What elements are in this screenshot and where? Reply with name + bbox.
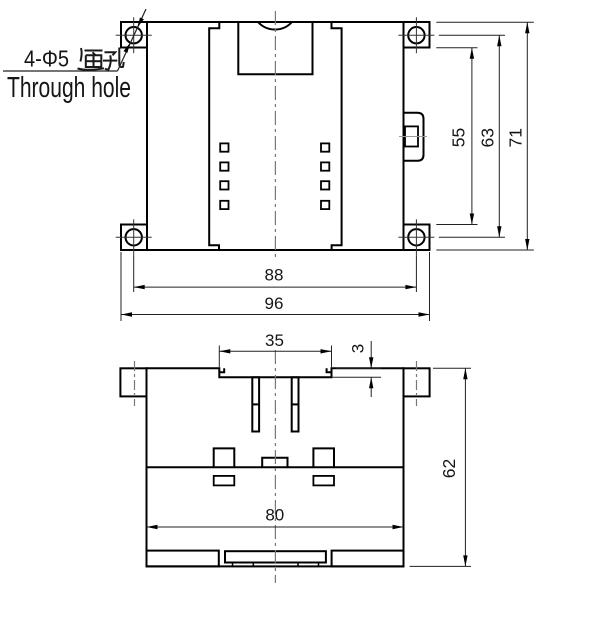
- svg-text:4-Φ5: 4-Φ5: [24, 46, 69, 72]
- svg-text:55: 55: [448, 128, 468, 147]
- svg-text:35: 35: [265, 331, 284, 350]
- svg-text:80: 80: [265, 506, 284, 525]
- svg-text:71: 71: [506, 128, 526, 147]
- svg-text:Through hole: Through hole: [7, 72, 131, 104]
- svg-text:63: 63: [478, 128, 498, 147]
- svg-text:96: 96: [265, 294, 284, 313]
- svg-text:62: 62: [439, 459, 459, 478]
- svg-text:88: 88: [265, 266, 284, 285]
- svg-text:3: 3: [349, 344, 368, 353]
